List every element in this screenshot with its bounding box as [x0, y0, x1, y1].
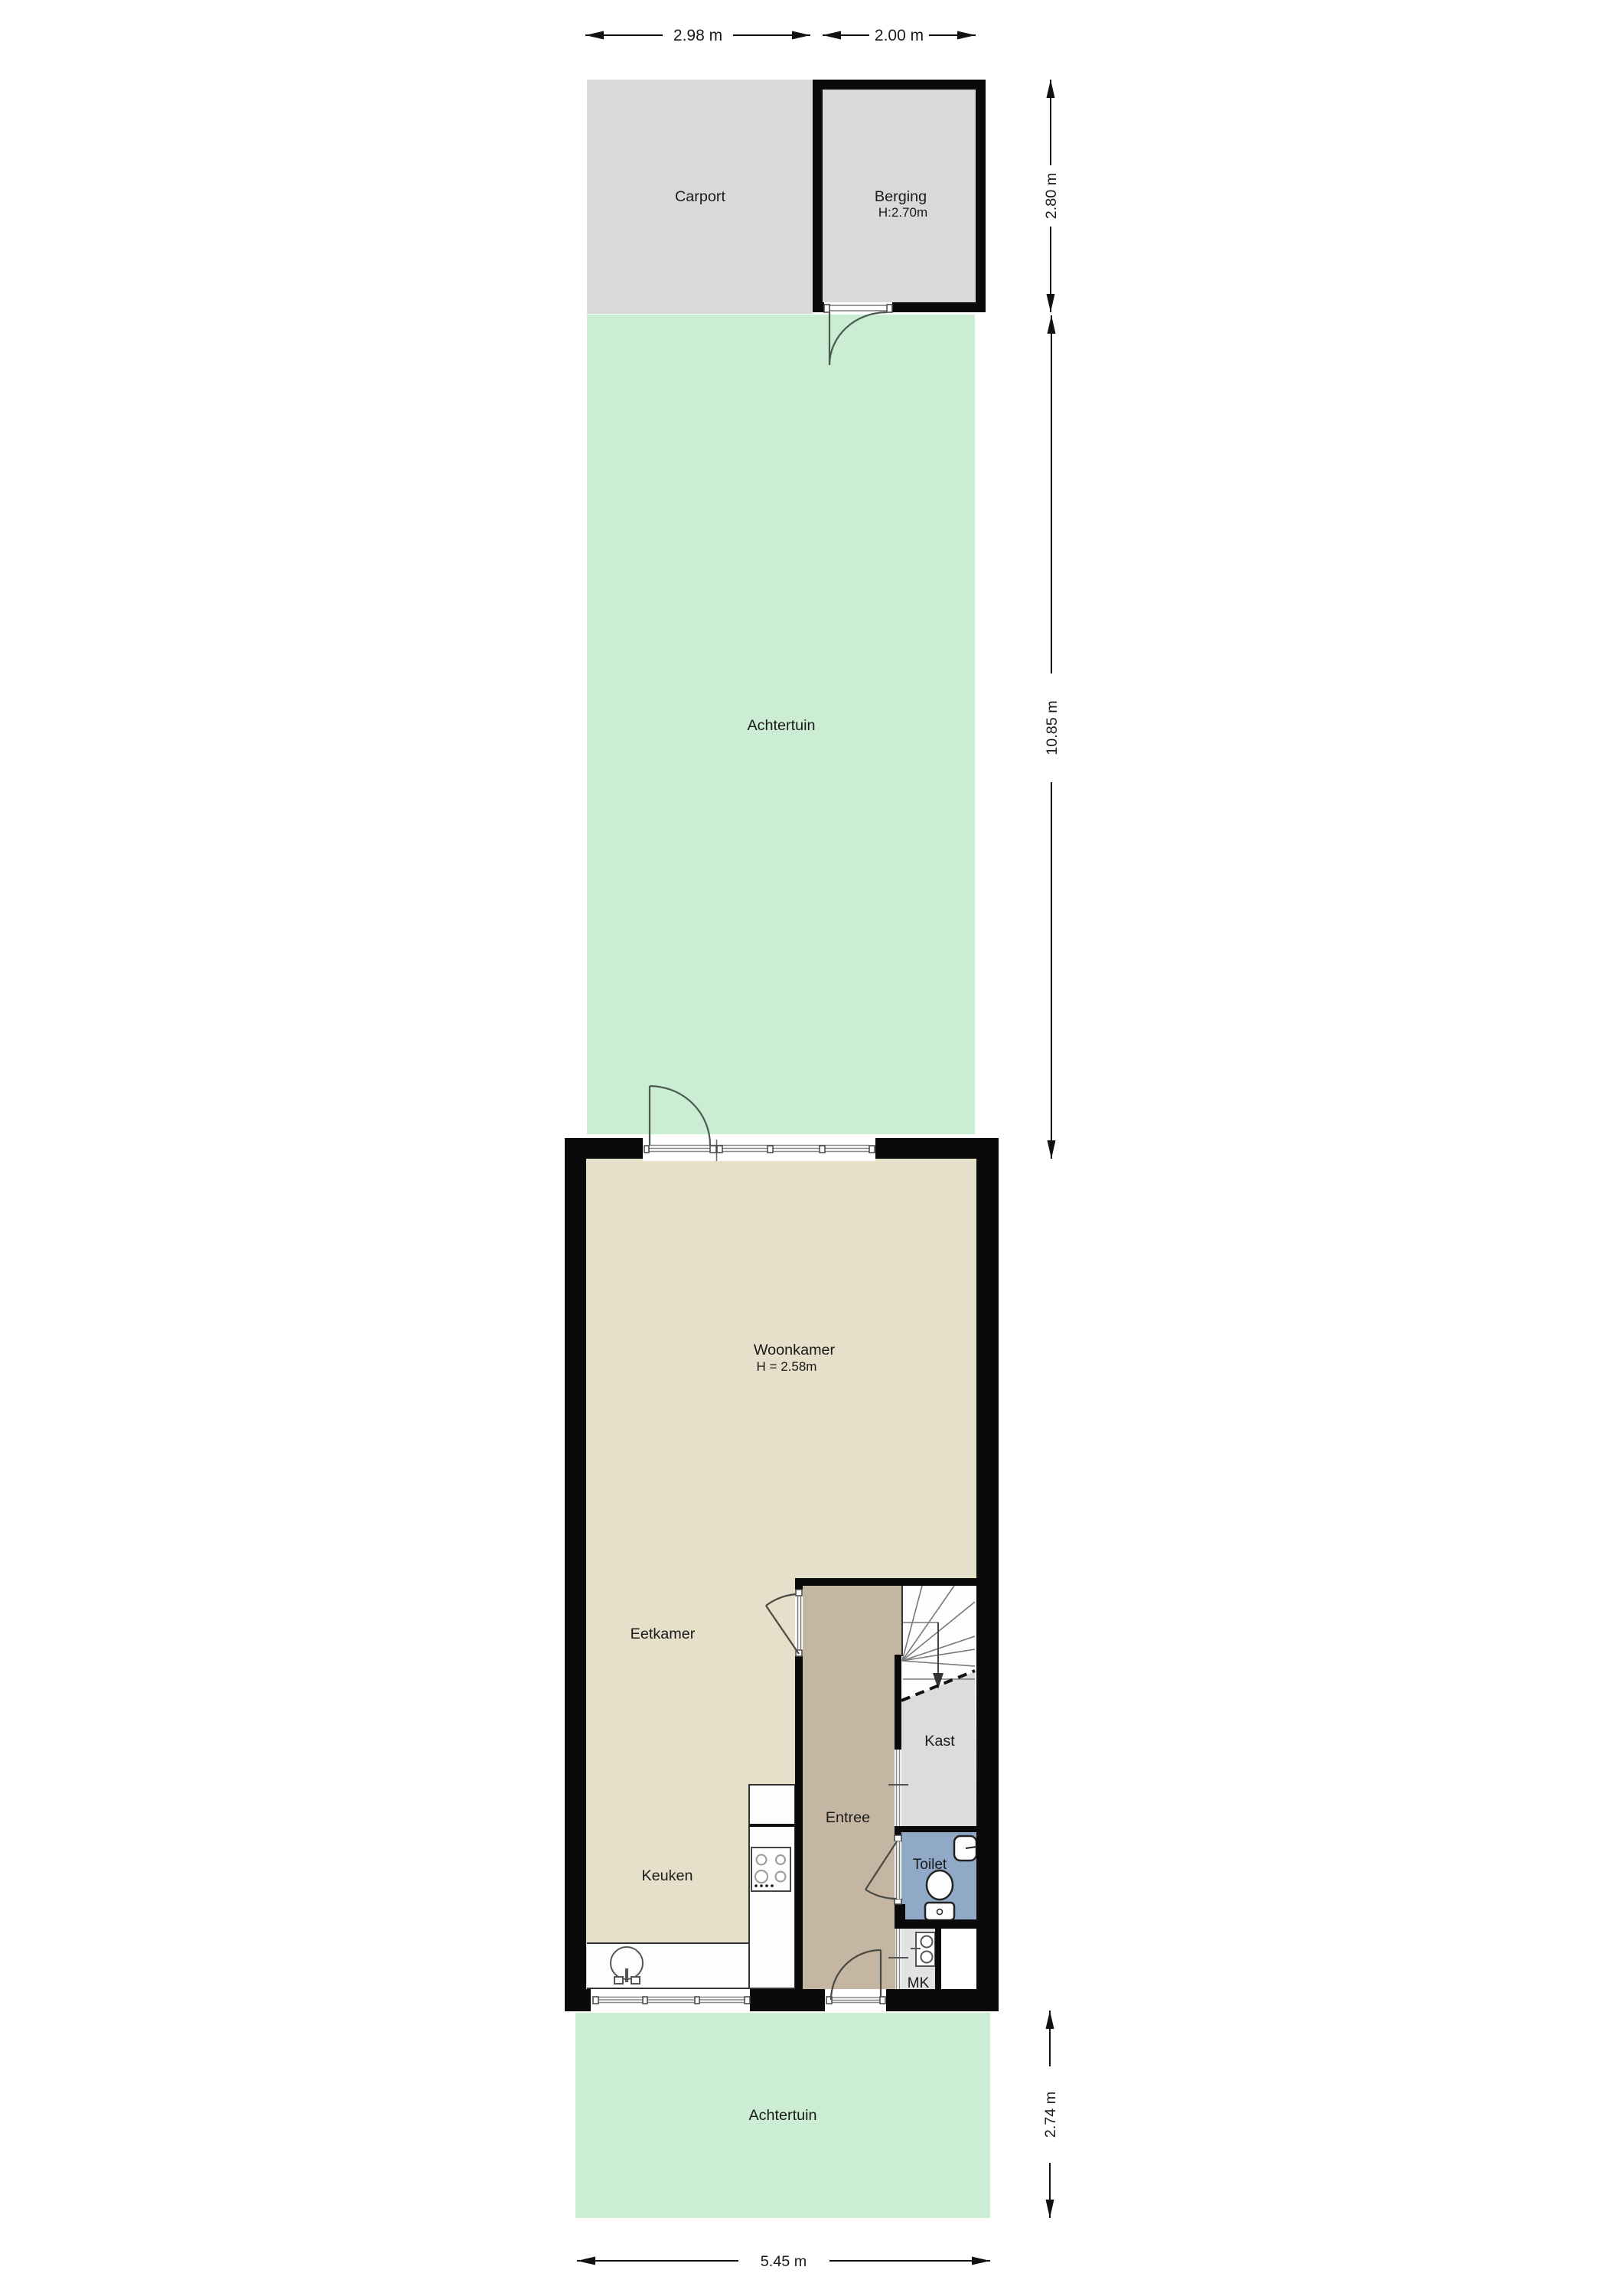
svg-text:2.00 m: 2.00 m	[875, 27, 924, 44]
svg-text:Woonkamer: Woonkamer	[754, 1342, 836, 1358]
svg-text:2.74 m: 2.74 m	[1042, 2092, 1059, 2138]
svg-text:Kast: Kast	[924, 1733, 955, 1750]
svg-text:Achtertuin: Achtertuin	[747, 717, 815, 734]
svg-text:2.98 m: 2.98 m	[673, 27, 722, 44]
svg-text:H:2.70m: H:2.70m	[878, 205, 927, 220]
svg-text:H = 2.58m: H = 2.58m	[757, 1359, 817, 1374]
svg-text:Berging: Berging	[875, 188, 927, 205]
svg-text:Keuken: Keuken	[641, 1867, 693, 1884]
svg-text:MK: MK	[908, 1975, 930, 1991]
svg-text:Achtertuin: Achtertuin	[748, 2107, 816, 2124]
svg-text:2.80 m: 2.80 m	[1043, 173, 1060, 219]
svg-text:Carport: Carport	[675, 188, 725, 205]
svg-text:10.85 m: 10.85 m	[1044, 700, 1061, 755]
svg-text:5.45 m: 5.45 m	[761, 2253, 807, 2270]
svg-text:Toilet: Toilet	[913, 1857, 947, 1873]
svg-text:Eetkamer: Eetkamer	[631, 1626, 696, 1642]
svg-text:Entree: Entree	[826, 1809, 870, 1826]
